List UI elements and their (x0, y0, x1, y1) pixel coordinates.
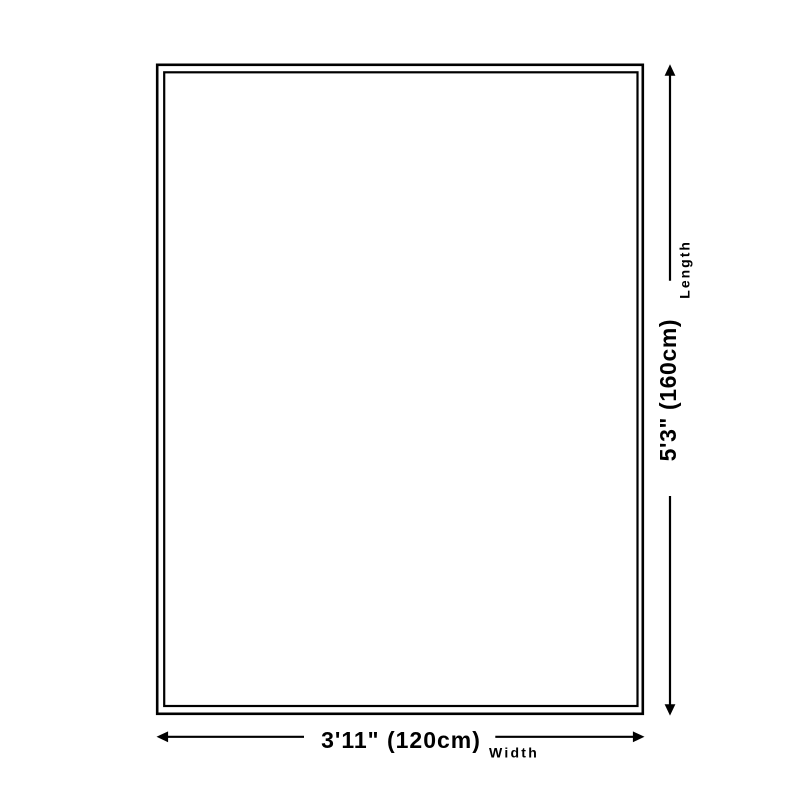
svg-text:5'3" (160cm): 5'3" (160cm) (655, 319, 681, 461)
svg-text:Width: Width (489, 745, 539, 761)
svg-text:3'11" (120cm): 3'11" (120cm) (321, 727, 481, 753)
svg-text:Length: Length (676, 240, 692, 299)
